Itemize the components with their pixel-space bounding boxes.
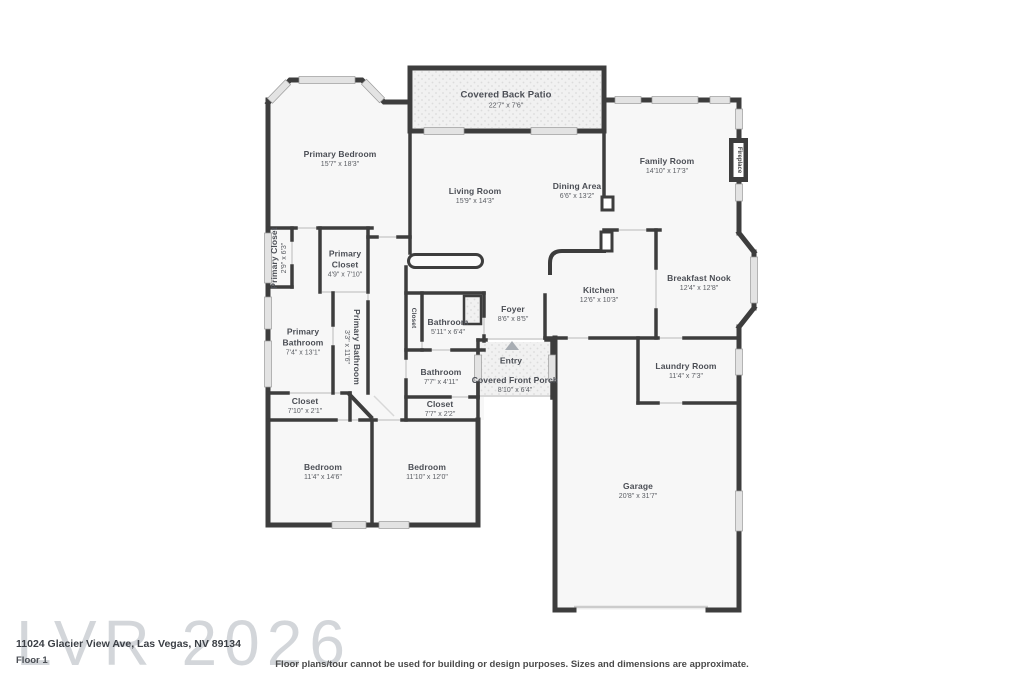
room-label-primary-bedroom: Primary Bedroom 15'7" x 18'3" (304, 149, 377, 169)
room-label-family-room: Family Room 14'10" x 17'3" (640, 156, 694, 176)
room-dims: 14'10" x 17'3" (640, 167, 694, 176)
room-label-bathroom-lower: Bathroom 7'7" x 4'11" (421, 367, 462, 387)
room-dims: 7'7" x 2'2" (425, 410, 456, 419)
room-name: Family Room (640, 156, 694, 167)
room-label-closet-left: Closet 7'10" x 2'1" (288, 396, 323, 416)
room-dims: 22'7" x 7'6" (460, 102, 551, 111)
room-label-breakfast-nook: Breakfast Nook 12'4" x 12'8" (667, 273, 731, 293)
room-dims: 12'4" x 12'8" (667, 284, 731, 293)
room-label-primary-closet: Primary Closet 4'9" x 7'10" (315, 248, 375, 279)
room-name: Primary Bathroom (351, 309, 362, 385)
room-dims: 8'6" x 8'5" (498, 315, 529, 324)
room-dims: 8'10" x 6'4" (472, 386, 558, 395)
room-name: Laundry Room (655, 361, 716, 372)
room-label-covered-back-patio: Covered Back Patio 22'7" x 7'6" (460, 89, 551, 110)
room-dims: 11'4" x 7'3" (655, 372, 716, 381)
room-label-bedroom-left: Bedroom 11'4" x 14'6" (304, 462, 342, 482)
fireplace-label: Fireplace (736, 147, 742, 173)
room-label-laundry-room: Laundry Room 11'4" x 7'3" (655, 361, 716, 381)
room-label-foyer: Foyer 8'6" x 8'5" (498, 304, 529, 324)
room-name: Entry (500, 355, 522, 366)
room-name: Foyer (498, 304, 529, 315)
room-label-dining-area: Dining Area 6'6" x 13'2" (553, 181, 602, 201)
room-label-primary-bathroom: Primary Bathroom 7'4" x 13'1" (273, 326, 333, 357)
room-dims: 11'10" x 12'0" (406, 473, 448, 482)
room-dims: 7'4" x 13'1" (273, 349, 333, 358)
room-name: Dining Area (553, 181, 602, 192)
room-label-closet-lower: Closet 7'7" x 2'2" (425, 399, 456, 419)
room-name: Breakfast Nook (667, 273, 731, 284)
room-label-bedroom-right: Bedroom 11'10" x 12'0" (406, 462, 448, 482)
room-label-entry: Entry (500, 355, 522, 366)
room-name: Covered Front Porch (472, 375, 558, 386)
room-name: Bedroom (406, 462, 448, 473)
room-label-bathroom-upper: Bathroom 5'11" x 6'4" (428, 317, 469, 337)
kitchen-column (601, 232, 612, 251)
room-name: Primary Bedroom (304, 149, 377, 160)
room-name: Closet (425, 399, 456, 410)
room-label-closet-hall: Closet (409, 308, 417, 328)
room-name: Bedroom (304, 462, 342, 473)
room-dims: 2'9" x 6'3" (280, 227, 289, 288)
room-name: Closet (409, 308, 417, 328)
room-dims: 11'4" x 14'6" (304, 473, 342, 482)
room-dims: 6'6" x 13'2" (553, 192, 602, 201)
room-name: Closet (288, 396, 323, 407)
room-name: Living Room (449, 186, 502, 197)
room-name: Primary Bathroom (273, 326, 333, 348)
room-name: Primary Closet (315, 248, 375, 270)
property-address: 11024 Glacier View Ave, Las Vegas, NV 89… (16, 638, 241, 650)
room-label-kitchen: Kitchen 12'6" x 10'3" (580, 285, 618, 305)
room-dims: 3'3" x 11'6" (342, 309, 351, 385)
room-dims: 7'10" x 2'1" (288, 407, 323, 416)
room-name: Covered Back Patio (460, 89, 551, 101)
room-dims: 15'9" x 14'3" (449, 197, 502, 206)
dining-wall-stub (602, 197, 613, 210)
room-dims: 7'7" x 4'11" (421, 378, 462, 387)
room-dims: 12'6" x 10'3" (580, 296, 618, 305)
room-dims: 15'7" x 18'3" (304, 160, 377, 169)
room-label-garage: Garage 20'8" x 31'7" (619, 481, 657, 501)
room-name: Garage (619, 481, 657, 492)
floor-plan-page: Covered Back Patio 22'7" x 7'6" Primary … (0, 0, 1024, 682)
room-label-living-room: Living Room 15'9" x 14'3" (449, 186, 502, 206)
room-dims: 5'11" x 6'4" (428, 328, 469, 337)
disclaimer-text: Floor plans/tour cannot be used for buil… (0, 659, 1024, 670)
room-dims: 20'8" x 31'7" (619, 492, 657, 501)
media-counter (409, 255, 483, 268)
room-name: Kitchen (580, 285, 618, 296)
room-name: Primary Closet (269, 227, 280, 288)
room-label-covered-front-porch: Covered Front Porch 8'10" x 6'4" (472, 375, 558, 395)
room-name: Bathroom (421, 367, 462, 378)
room-label-primary-bathroom-hall: Primary Bathroom 3'3" x 11'6" (342, 309, 362, 385)
room-label-primary-closet-left: Primary Closet 2'9" x 6'3" (269, 227, 289, 288)
room-name: Bathroom (428, 317, 469, 328)
room-dims: 4'9" x 7'10" (315, 271, 375, 280)
